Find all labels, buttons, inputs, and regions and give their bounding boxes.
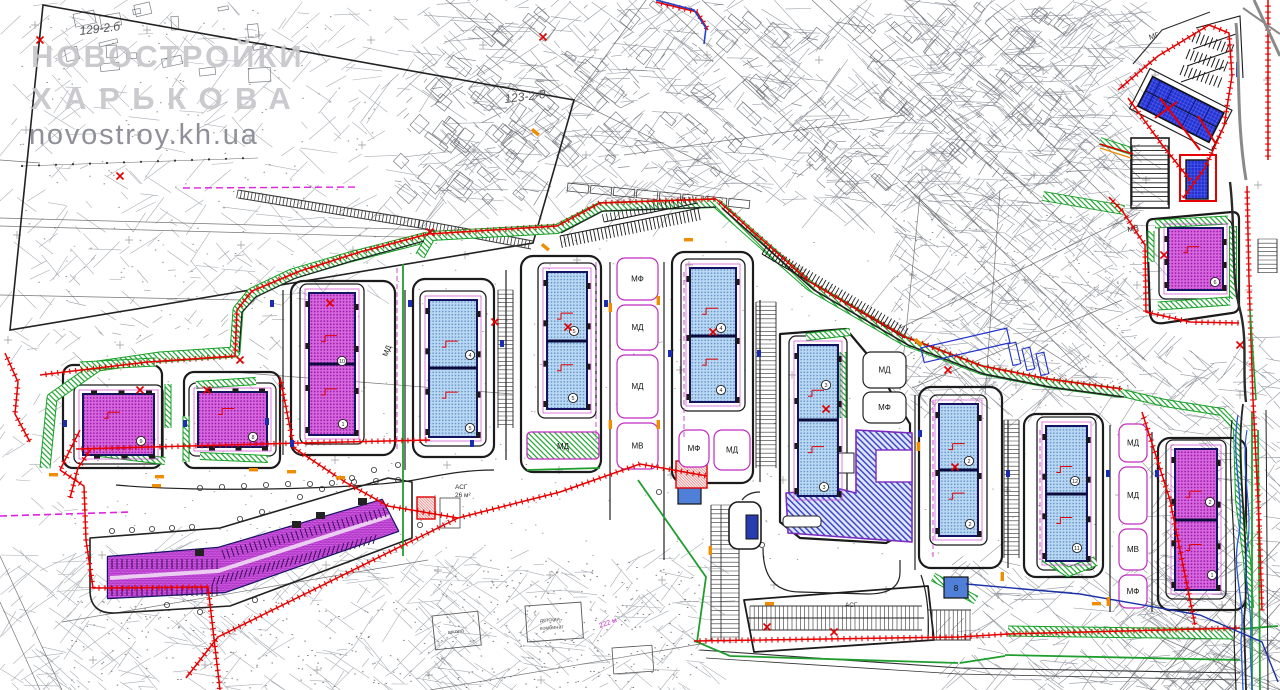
svg-text:8: 8	[251, 435, 254, 441]
svg-text:1: 1	[1210, 573, 1213, 579]
svg-text:8: 8	[954, 584, 959, 593]
svg-text:11: 11	[1074, 546, 1080, 552]
svg-text:МФ: МФ	[878, 403, 891, 412]
svg-text:МФ: МФ	[1127, 587, 1140, 596]
svg-text:5: 5	[572, 329, 575, 335]
svg-text:МД: МД	[631, 323, 644, 332]
svg-text:ХАРЬКОВА: ХАРЬКОВА	[31, 81, 303, 116]
svg-text:novostroy.kh.ua: novostroy.kh.ua	[29, 119, 259, 151]
svg-text:МД: МД	[1127, 439, 1140, 448]
svg-text:МД: МД	[557, 442, 570, 451]
svg-text:АСГ: АСГ	[845, 602, 858, 609]
svg-text:НОВОСТРОЙКИ: НОВОСТРОЙКИ	[31, 38, 305, 74]
svg-text:4: 4	[468, 353, 471, 359]
svg-text:12: 12	[1072, 479, 1078, 485]
svg-text:3: 3	[822, 485, 825, 491]
svg-text:МФ: МФ	[631, 275, 644, 284]
svg-text:9: 9	[139, 439, 142, 445]
svg-text:МД: МД	[878, 366, 891, 375]
svg-text:МД: МД	[631, 382, 644, 391]
svg-text:МВ: МВ	[1127, 545, 1139, 554]
svg-text:МД: МД	[1127, 491, 1140, 500]
svg-text:4: 4	[719, 326, 722, 332]
svg-text:2: 2	[1208, 500, 1211, 506]
svg-text:МД: МД	[726, 446, 739, 455]
svg-text:5: 5	[468, 426, 471, 432]
svg-text:МФ: МФ	[688, 444, 701, 453]
svg-text:2: 2	[968, 522, 971, 528]
svg-text:5: 5	[571, 396, 574, 402]
svg-text:3: 3	[824, 383, 827, 389]
svg-text:4: 4	[719, 388, 722, 394]
svg-text:МВ: МВ	[632, 442, 644, 451]
svg-text:10: 10	[339, 359, 345, 365]
svg-text:2: 2	[967, 459, 970, 465]
svg-text:1: 1	[341, 422, 344, 428]
svg-text:6: 6	[1213, 280, 1216, 286]
